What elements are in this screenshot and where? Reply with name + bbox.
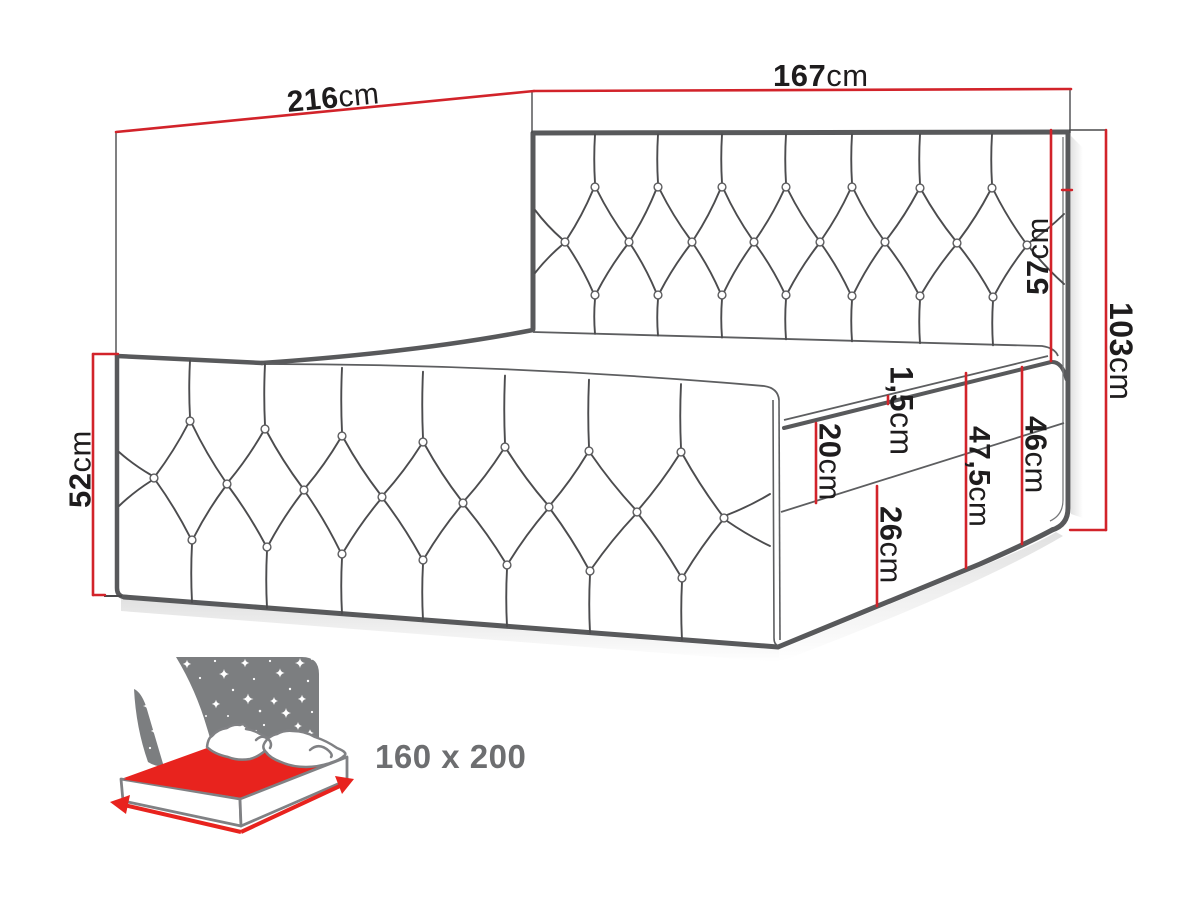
svg-text:47,5cm: 47,5cm [963, 426, 996, 527]
svg-text:52cm: 52cm [63, 430, 98, 508]
svg-text:26cm: 26cm [874, 506, 909, 584]
svg-text:1,5cm: 1,5cm [884, 366, 920, 456]
svg-text:57cm: 57cm [1020, 217, 1055, 295]
svg-text:167cm: 167cm [773, 58, 869, 93]
svg-text:46cm: 46cm [1019, 416, 1054, 494]
svg-text:216cm: 216cm [286, 77, 381, 119]
svg-text:160 x 200: 160 x 200 [375, 738, 526, 775]
svg-text:20cm: 20cm [813, 423, 848, 501]
svg-text:103cm: 103cm [1103, 302, 1139, 401]
